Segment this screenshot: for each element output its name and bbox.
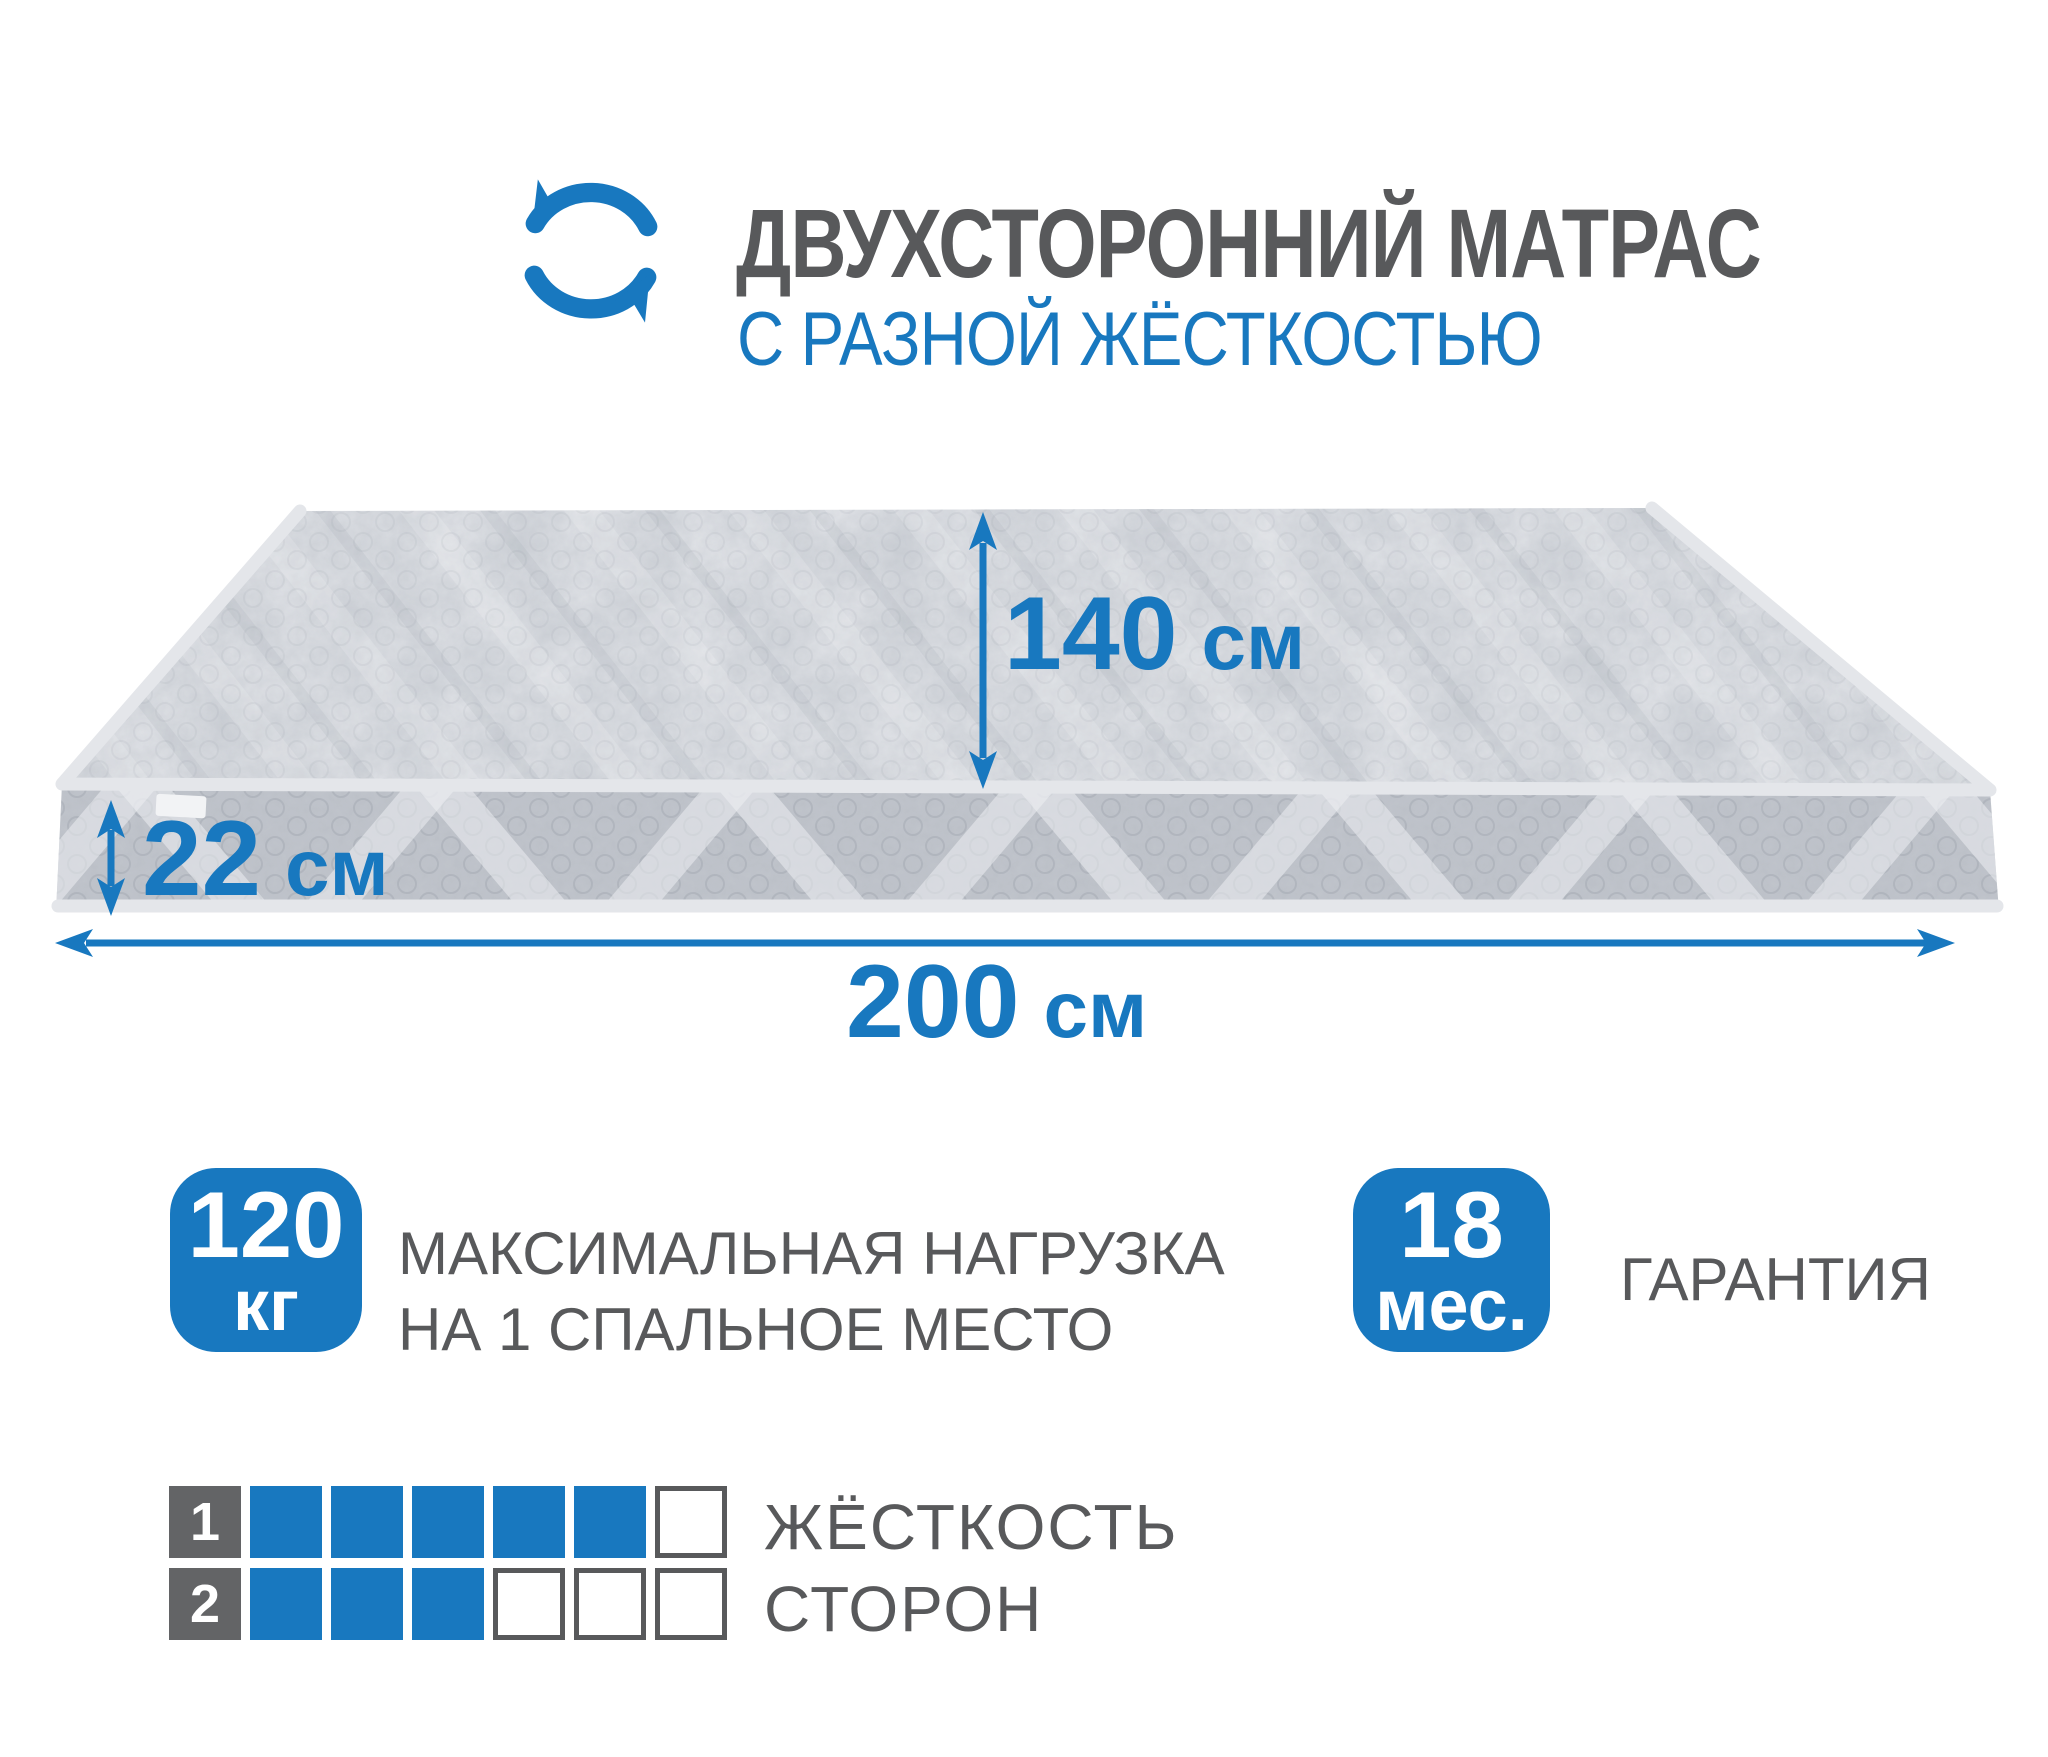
height-value: 22: [142, 806, 261, 910]
warranty-caption: ГАРАНТИЯ: [1620, 1242, 1931, 1318]
length-unit: см: [1044, 958, 1148, 1062]
warranty-value: 18: [1399, 1179, 1504, 1271]
firmness-caption: ЖЁСТКОСТЬ СТОРОН: [764, 1486, 1179, 1650]
max-load-value: 120: [188, 1179, 345, 1271]
firmness-cell-filled: [250, 1568, 322, 1640]
width-dimension-label: 140 см: [1004, 582, 1305, 694]
firmness-cell-filled: [331, 1568, 403, 1640]
firmness-cell-empty: [574, 1568, 646, 1640]
length-value: 200: [846, 950, 1020, 1054]
firmness-cell-empty: [655, 1486, 727, 1558]
firmness-side-number: 2: [169, 1568, 241, 1640]
firmness-row-side-2: 2: [169, 1568, 727, 1640]
max-load-unit: кг: [233, 1271, 299, 1341]
firmness-caption-line1: ЖЁСТКОСТЬ: [764, 1486, 1179, 1568]
width-unit: см: [1202, 590, 1306, 694]
firmness-cell-filled: [331, 1486, 403, 1558]
length-dimension-label: 200 см: [846, 950, 1147, 1062]
firmness-cell-empty: [655, 1568, 727, 1640]
height-unit: см: [285, 816, 389, 920]
firmness-row-side-1: 1: [169, 1486, 727, 1558]
firmness-cell-filled: [412, 1486, 484, 1558]
mattress-infographic: ДВУХСТОРОННИЙ МАТРАС С РАЗНОЙ ЖЁСТКОСТЬЮ: [0, 0, 2048, 1757]
firmness-side-number: 1: [169, 1486, 241, 1558]
firmness-cell-filled: [250, 1486, 322, 1558]
max-load-caption-line1: МАКСИМАЛЬНАЯ НАГРУЗКА: [398, 1216, 1225, 1292]
width-value: 140: [1004, 582, 1178, 686]
firmness-cell-filled: [574, 1486, 646, 1558]
firmness-scale: 1 2: [169, 1486, 727, 1650]
firmness-cell-filled: [493, 1486, 565, 1558]
firmness-cell-filled: [412, 1568, 484, 1640]
warranty-unit: мес.: [1375, 1271, 1527, 1341]
firmness-cell-empty: [493, 1568, 565, 1640]
height-dimension-label: 22 см: [142, 806, 389, 920]
firmness-caption-line2: СТОРОН: [764, 1568, 1179, 1650]
max-load-caption-line2: НА 1 СПАЛЬНОЕ МЕСТО: [398, 1292, 1225, 1368]
max-load-badge: 120 кг: [170, 1168, 362, 1352]
max-load-caption: МАКСИМАЛЬНАЯ НАГРУЗКА НА 1 СПАЛЬНОЕ МЕСТ…: [398, 1216, 1225, 1368]
warranty-badge: 18 мес.: [1353, 1168, 1550, 1352]
